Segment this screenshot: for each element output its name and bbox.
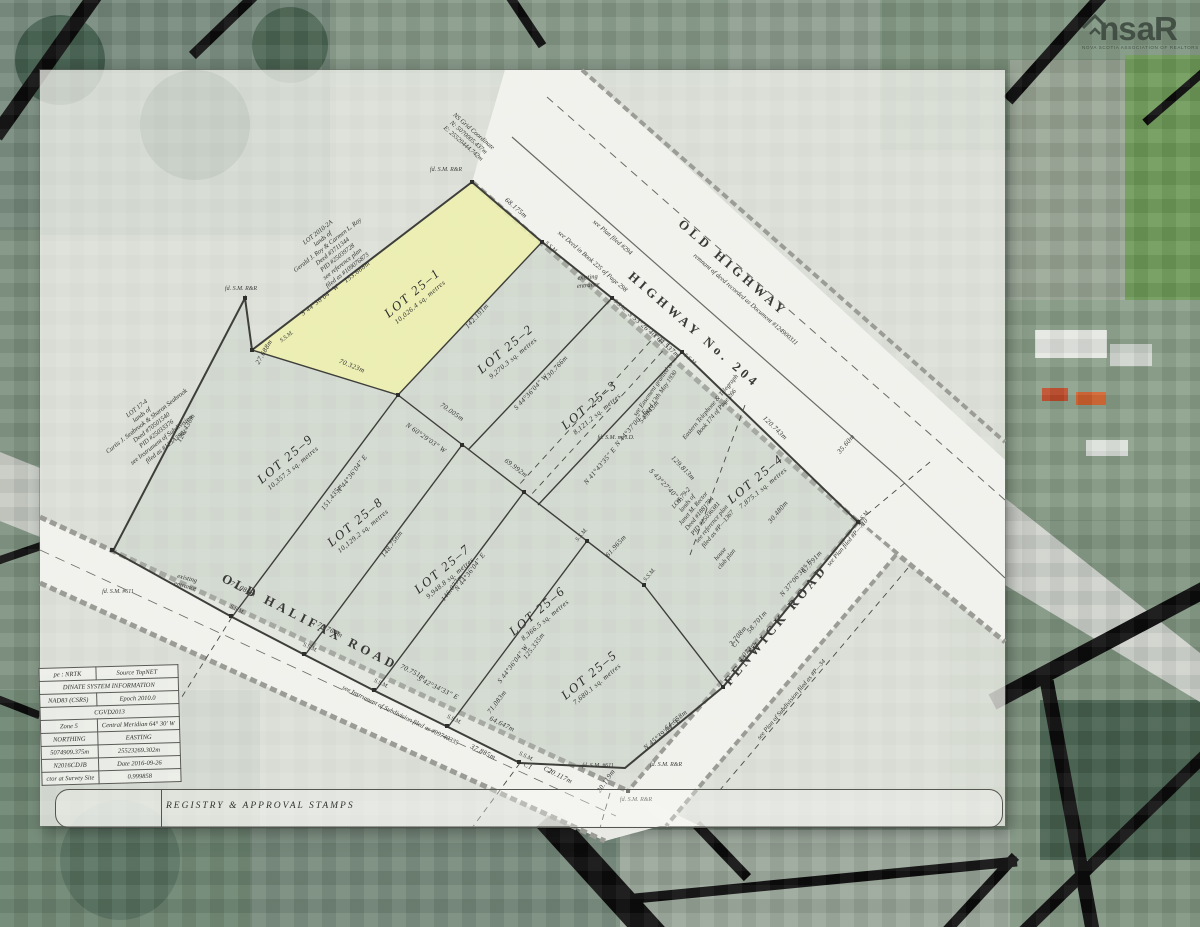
registry-title: REGISTRY & APPROVAL STAMPS (166, 801, 355, 811)
nsar-watermark: ns aR NOVA SCOTIA ASSOCIATION OF REALTOR… (1082, 14, 1194, 50)
nsar-tagline: NOVA SCOTIA ASSOCIATION OF REALTORS ® (1082, 45, 1194, 50)
registry-divider (161, 790, 162, 827)
survey-plan-linework (0, 0, 1200, 927)
nsar-logo: ns aR (1082, 14, 1194, 44)
house-roof-icon (1082, 14, 1108, 36)
registry-stamps-box: REGISTRY & APPROVAL STAMPS (55, 789, 1003, 828)
info-table-cell: 0.999858 (99, 769, 181, 784)
info-table-cell: ctor at Survey Site (42, 771, 99, 786)
listing-image: OLD HIGHWAYHIGHWAY No. 204OLD HALIFAX RO… (0, 0, 1200, 927)
coordinate-info-table: pe : NRTKSource TopNETDINATE SYSTEM INFO… (38, 664, 181, 786)
nsar-logo-suffix: aR (1137, 14, 1177, 44)
